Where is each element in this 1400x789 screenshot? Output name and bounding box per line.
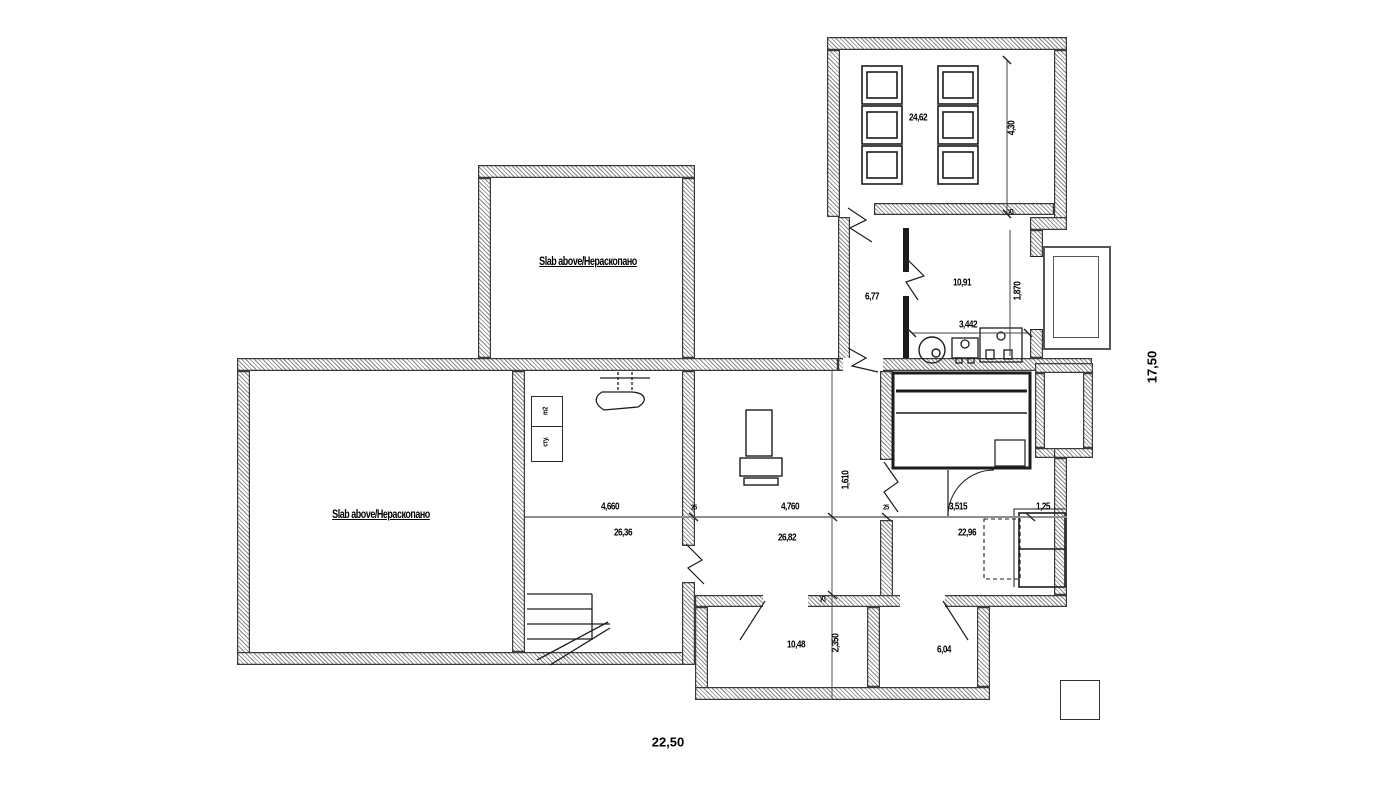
ironing-board-icon — [596, 372, 650, 410]
area-label-storage: 24,62 — [909, 113, 927, 124]
wall-slabtop-left — [478, 178, 491, 358]
chair-desk-icon — [740, 410, 782, 485]
bed-icon — [984, 509, 1065, 587]
room-label-slab-top: Slab above/Нераскопано — [539, 256, 637, 268]
bay-window-inner — [1053, 256, 1099, 338]
floor-plan-canvas: 24,62 4,30 25 Slab above/Нераскопано Sla… — [0, 0, 1400, 789]
wall-main-band-left — [237, 358, 838, 371]
dim-label-bottom-room-height: 2,350 — [831, 634, 842, 653]
dim-label-wall-thickness-c: 25 — [883, 505, 889, 512]
legend-cell-bottom-label: сту. — [543, 437, 550, 446]
wall-slabtop-right — [682, 178, 695, 358]
wall-storage-left — [827, 50, 840, 217]
area-label-bottom-middle: 10,48 — [787, 640, 805, 651]
window-bath — [1030, 256, 1043, 330]
shelf-column-left — [862, 66, 902, 184]
door-gap-corridor — [843, 358, 883, 371]
wall-storage-top — [827, 37, 1067, 50]
area-label-stairsroom: 26,36 — [614, 528, 632, 539]
dim-label-wall-thickness-a: 25 — [1009, 209, 1016, 215]
wall-right-lower — [1054, 458, 1067, 595]
door-gap-bottomright — [900, 595, 945, 607]
wall-stairsroom-right-upper — [682, 371, 695, 546]
dim-label-stairsroom-width: 4,660 — [601, 502, 619, 513]
wall-south-band — [695, 595, 1067, 607]
dim-label-overall-height: 17,50 — [1145, 351, 1160, 384]
sink-unit-icon — [980, 328, 1022, 362]
wall-stairsroom-right-lower — [682, 582, 695, 665]
tank — [893, 373, 1030, 468]
legend-square — [1060, 680, 1100, 720]
wall-closet-left — [1035, 373, 1045, 448]
dim-label-bed-width: 1,25 — [1036, 502, 1050, 513]
wall-central-right-lower — [880, 520, 893, 607]
wall-closet-top — [1035, 363, 1093, 373]
wall-step-band — [1054, 448, 1093, 458]
wall-slableft-bottom — [237, 652, 695, 665]
wall-slableft-left — [237, 371, 250, 665]
wall-bottomright-right — [977, 607, 990, 687]
area-label-corridor: 6,77 — [865, 292, 879, 303]
dim-label-overall-width: 22,50 — [652, 735, 685, 750]
wall-storage-right — [1054, 50, 1067, 230]
dim-label-central-width: 4,760 — [781, 502, 799, 513]
wall-bath-partition-lower — [903, 296, 909, 358]
wall-storage-bottom — [874, 203, 1054, 215]
wall-jog-right — [1030, 217, 1067, 230]
dim-label-wall-thickness-d: 25 — [821, 596, 828, 602]
door-gap-bottommid — [763, 595, 808, 607]
dim-label-bedroom-width: 3,515 — [949, 502, 967, 513]
legend-cell-top-label: m2 — [543, 407, 550, 415]
wall-bath-partition-upper — [903, 228, 909, 272]
wall-slabtop-top — [478, 165, 695, 178]
wall-bottom-divider — [867, 607, 880, 687]
wall-slableft-right — [512, 371, 525, 652]
dim-label-wall-thickness-b: 25 — [691, 505, 697, 512]
area-label-bathroom: 10,91 — [953, 278, 971, 289]
dim-label-central-height: 1,610 — [841, 471, 852, 490]
wall-corridor-left — [838, 217, 850, 371]
wall-bottom-rooms-bottom — [695, 687, 990, 700]
dim-label-storage-depth: 4,30 — [1007, 121, 1018, 136]
dim-label-bath-height: 1,870 — [1013, 282, 1024, 301]
room-label-slab-left: Slab above/Нераскопано — [332, 509, 430, 521]
dim-label-bath-width: 3,442 — [959, 320, 977, 331]
area-label-bottom-right: 6,04 — [937, 645, 951, 656]
shelf-column-right — [938, 66, 978, 184]
area-label-central: 26,82 — [778, 533, 796, 544]
wall-central-right-upper — [880, 371, 893, 460]
wall-closet-right — [1083, 373, 1093, 448]
area-label-bedroom: 22,96 — [958, 528, 976, 539]
